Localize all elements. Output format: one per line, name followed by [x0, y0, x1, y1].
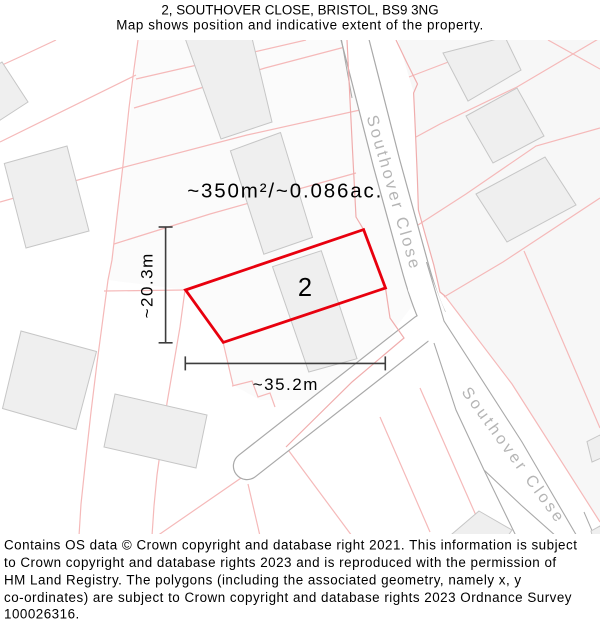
svg-text:~350m²/~0.086ac.: ~350m²/~0.086ac. [187, 180, 383, 203]
svg-text:100026316.: 100026316. [4, 606, 80, 621]
svg-text:to Crown copyright and databas: to Crown copyright and database rights 2… [4, 555, 557, 570]
svg-text:co-ordinates) are subject to C: co-ordinates) are subject to Crown copyr… [4, 590, 572, 605]
svg-text:~35.2m: ~35.2m [253, 375, 319, 394]
svg-text:Contains OS data © Crown copyr: Contains OS data © Crown copyright and d… [4, 538, 577, 553]
svg-text:~20.3m: ~20.3m [137, 252, 156, 318]
svg-text:2, SOUTHOVER CLOSE, BRISTOL, B: 2, SOUTHOVER CLOSE, BRISTOL, BS9 3NG [161, 3, 438, 18]
svg-text:2: 2 [298, 274, 312, 302]
svg-text:Map shows position and indicat: Map shows position and indicative extent… [116, 18, 484, 33]
svg-text:HM Land Registry. The polygons: HM Land Registry. The polygons (includin… [4, 573, 522, 588]
